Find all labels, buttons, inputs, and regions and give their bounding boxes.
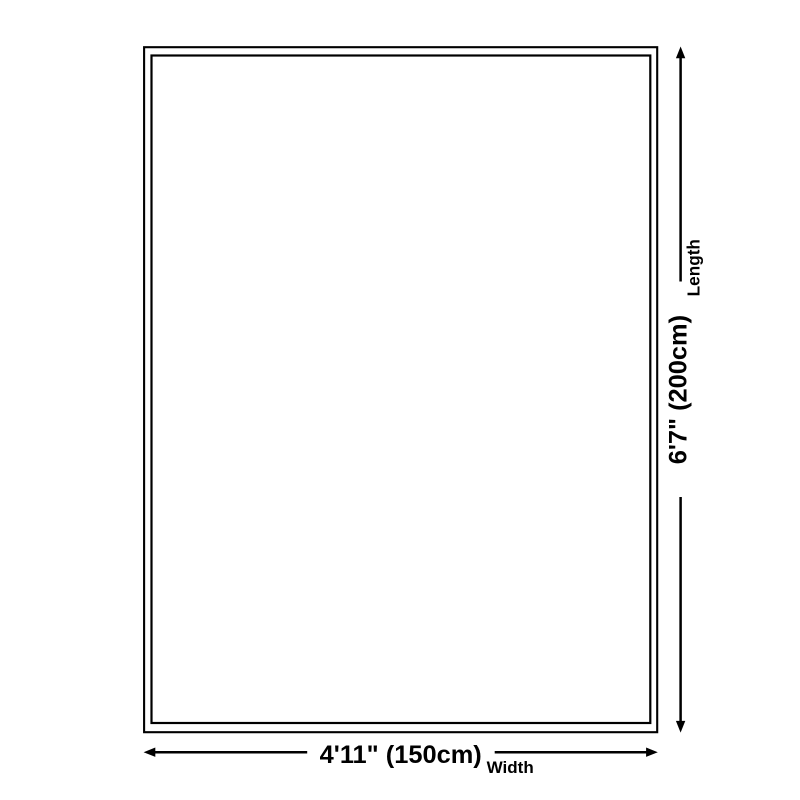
svg-text:6'7" (200cm): 6'7" (200cm) [665, 315, 693, 464]
svg-text:Length: Length [683, 239, 703, 296]
svg-text:Width: Width [487, 758, 534, 777]
svg-text:4'11" (150cm): 4'11" (150cm) [320, 741, 482, 769]
